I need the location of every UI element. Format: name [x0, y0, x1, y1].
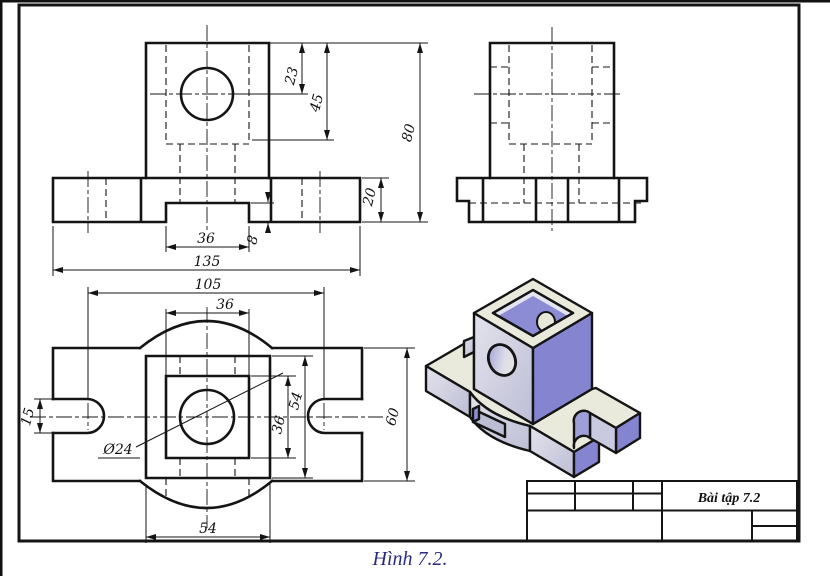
technical-drawing: 23 45 80 20 36 8 135 105 36 — [0, 0, 830, 576]
dim-dia24-label: Ø24 — [102, 442, 132, 458]
side-view — [457, 27, 647, 231]
page-edge-left — [0, 0, 3, 576]
dim-15-label: 15 — [18, 406, 38, 427]
front-view: 23 45 80 20 36 8 135 — [53, 25, 428, 276]
dim-60-label: 60 — [383, 406, 403, 427]
dim-23-label: 23 — [282, 65, 302, 87]
dim-105-label: 105 — [195, 277, 222, 293]
iso-base-notch-wall — [473, 406, 479, 422]
dim-54-square-label: 54 — [286, 390, 306, 411]
dim-8-label: 8 — [244, 234, 262, 247]
dim-20-label: 20 — [360, 186, 380, 208]
figure-caption: Hình 7.2. — [372, 548, 448, 570]
isometric-view — [426, 279, 640, 477]
dim-80-label: 80 — [399, 122, 419, 143]
title-block: Bài tập 7.2 — [527, 481, 797, 541]
dim-45-label: 45 — [307, 92, 327, 114]
iso-left-slot-tab — [464, 337, 474, 357]
dim-36-top-label: 36 — [216, 297, 234, 313]
dim-135-label: 135 — [194, 254, 221, 270]
drawing-frame — [19, 5, 799, 541]
page-edge-top — [0, 0, 830, 3]
dim-36-notch-label: 36 — [197, 231, 215, 247]
title-block-title: Bài tập 7.2 — [697, 491, 761, 506]
top-view: 105 36 15 Ø24 36 54 60 54 — [18, 277, 415, 543]
dim-54-bottom-label: 54 — [199, 521, 217, 537]
figure-page: 23 45 80 20 36 8 135 105 36 — [0, 0, 830, 576]
